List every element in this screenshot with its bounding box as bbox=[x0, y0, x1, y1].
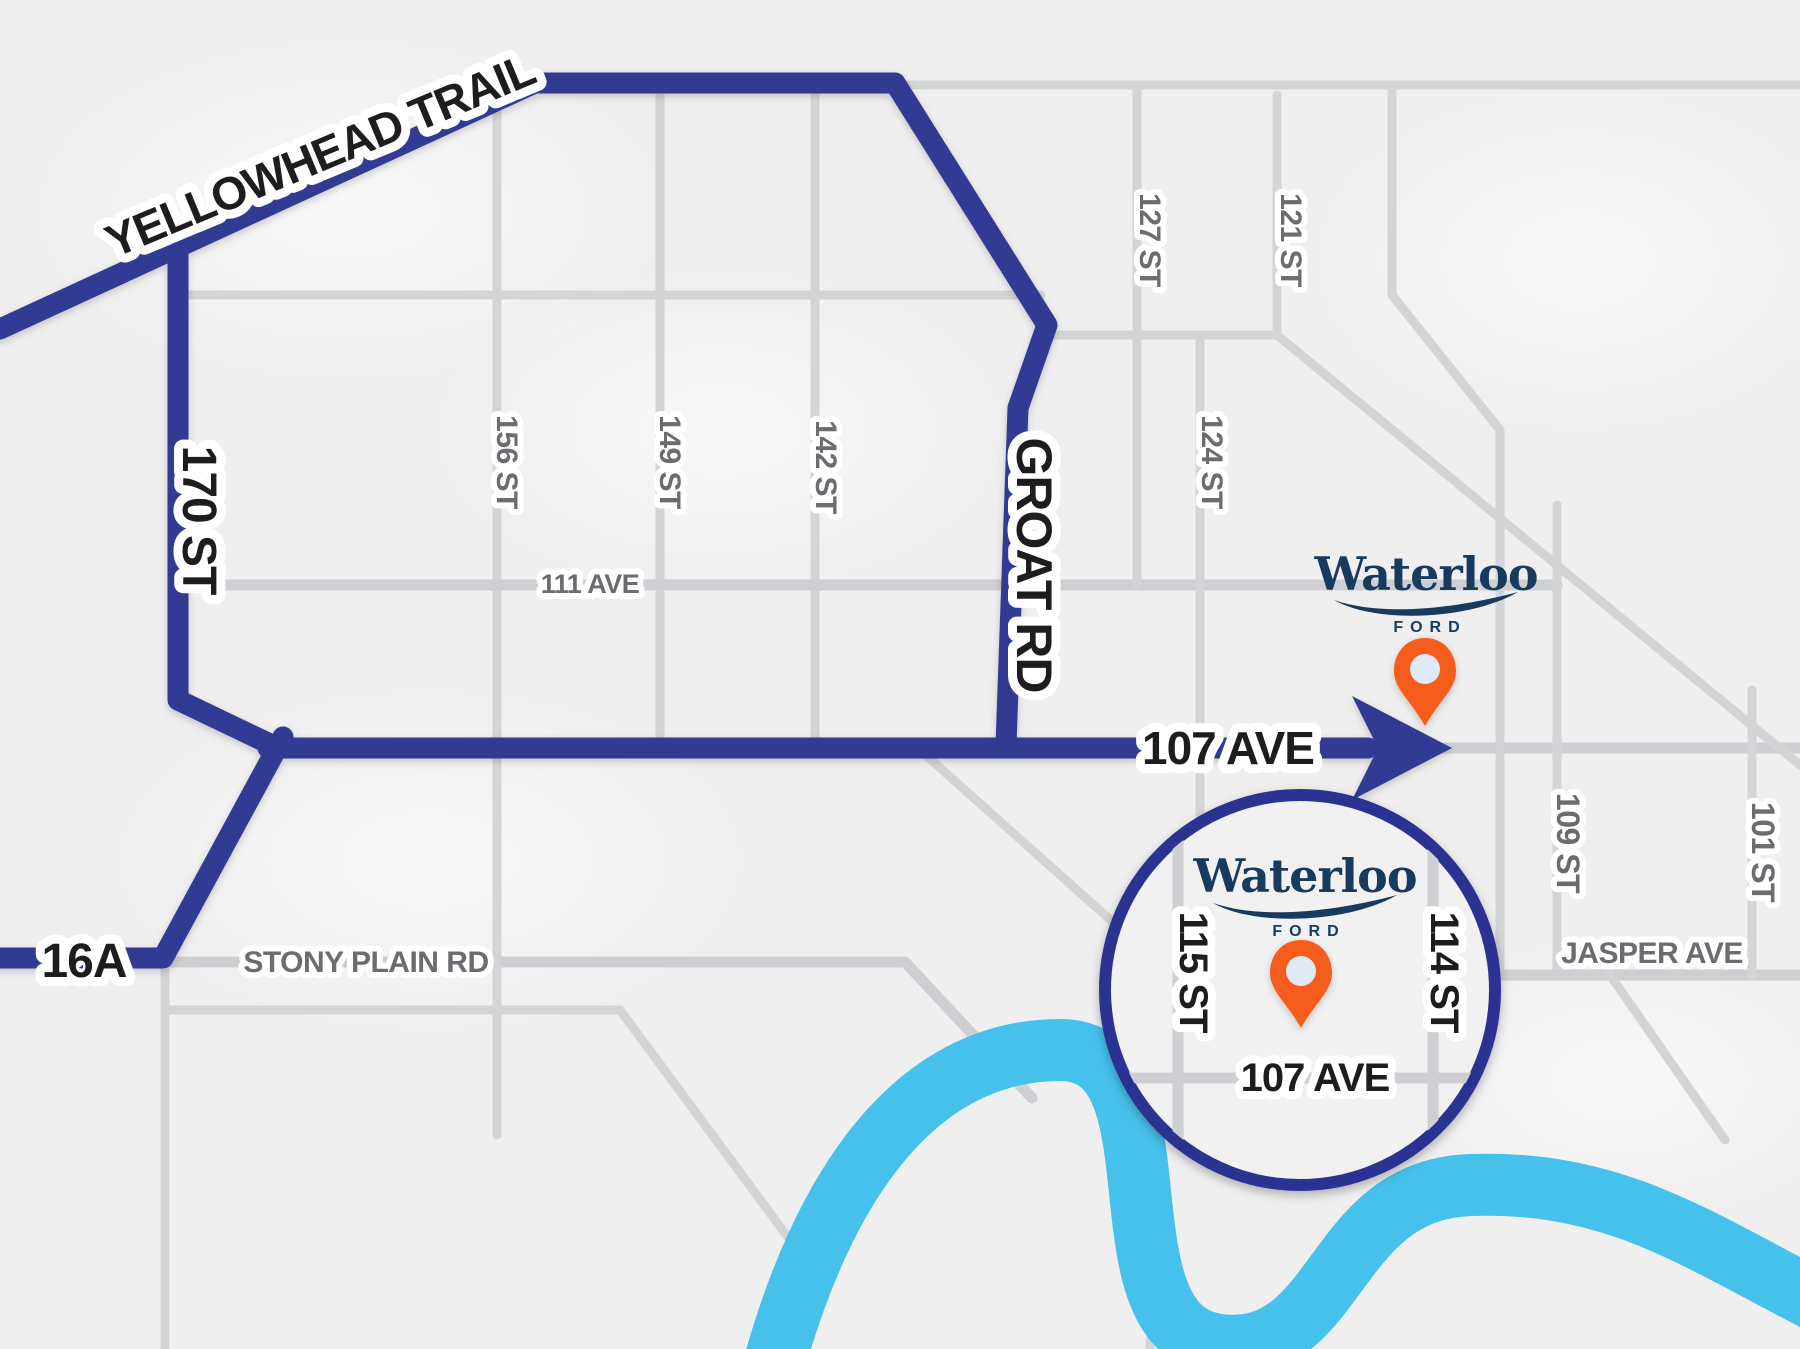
label-170-st: 170 ST bbox=[172, 446, 225, 595]
inset-waterloo-logo-division: FORD bbox=[1272, 923, 1345, 940]
label-142-st: 142 ST bbox=[809, 420, 842, 514]
label-156-st: 156 ST bbox=[490, 415, 523, 509]
inset-label-115-st: 115 ST bbox=[1171, 912, 1215, 1033]
label-107-ave: 107 AVE bbox=[1142, 722, 1314, 774]
label-124-st: 124 ST bbox=[1195, 415, 1228, 509]
label-121-st: 121 ST bbox=[1274, 193, 1307, 287]
magnifier-inset: Waterloo FORD 115 ST 114 ST 107 AVE bbox=[1105, 795, 1495, 1185]
label-109-st: 109 ST bbox=[1550, 793, 1586, 894]
label-101-st: 101 ST bbox=[1745, 802, 1781, 903]
inset-waterloo-logo-wordmark: Waterloo bbox=[1192, 849, 1416, 903]
waterloo-logo-division: FORD bbox=[1393, 619, 1466, 636]
label-groat-rd: GROAT RD bbox=[1006, 438, 1062, 693]
inset-label-107-ave: 107 AVE bbox=[1241, 1056, 1390, 1100]
map-canvas: Waterloo FORD 156 ST 149 ST 142 ST 127 S… bbox=[0, 0, 1800, 1349]
label-stony-plain-rd: STONY PLAIN RD bbox=[243, 946, 488, 979]
waterloo-logo-wordmark: Waterloo bbox=[1313, 547, 1537, 601]
label-149-st: 149 ST bbox=[653, 415, 686, 509]
label-111-ave: 111 AVE bbox=[541, 569, 640, 599]
label-127-st: 127 ST bbox=[1133, 193, 1166, 287]
inset-label-114-st: 114 ST bbox=[1422, 912, 1466, 1033]
label-jasper-ave: JASPER AVE bbox=[1561, 937, 1743, 970]
label-16a: 16A bbox=[41, 935, 126, 988]
